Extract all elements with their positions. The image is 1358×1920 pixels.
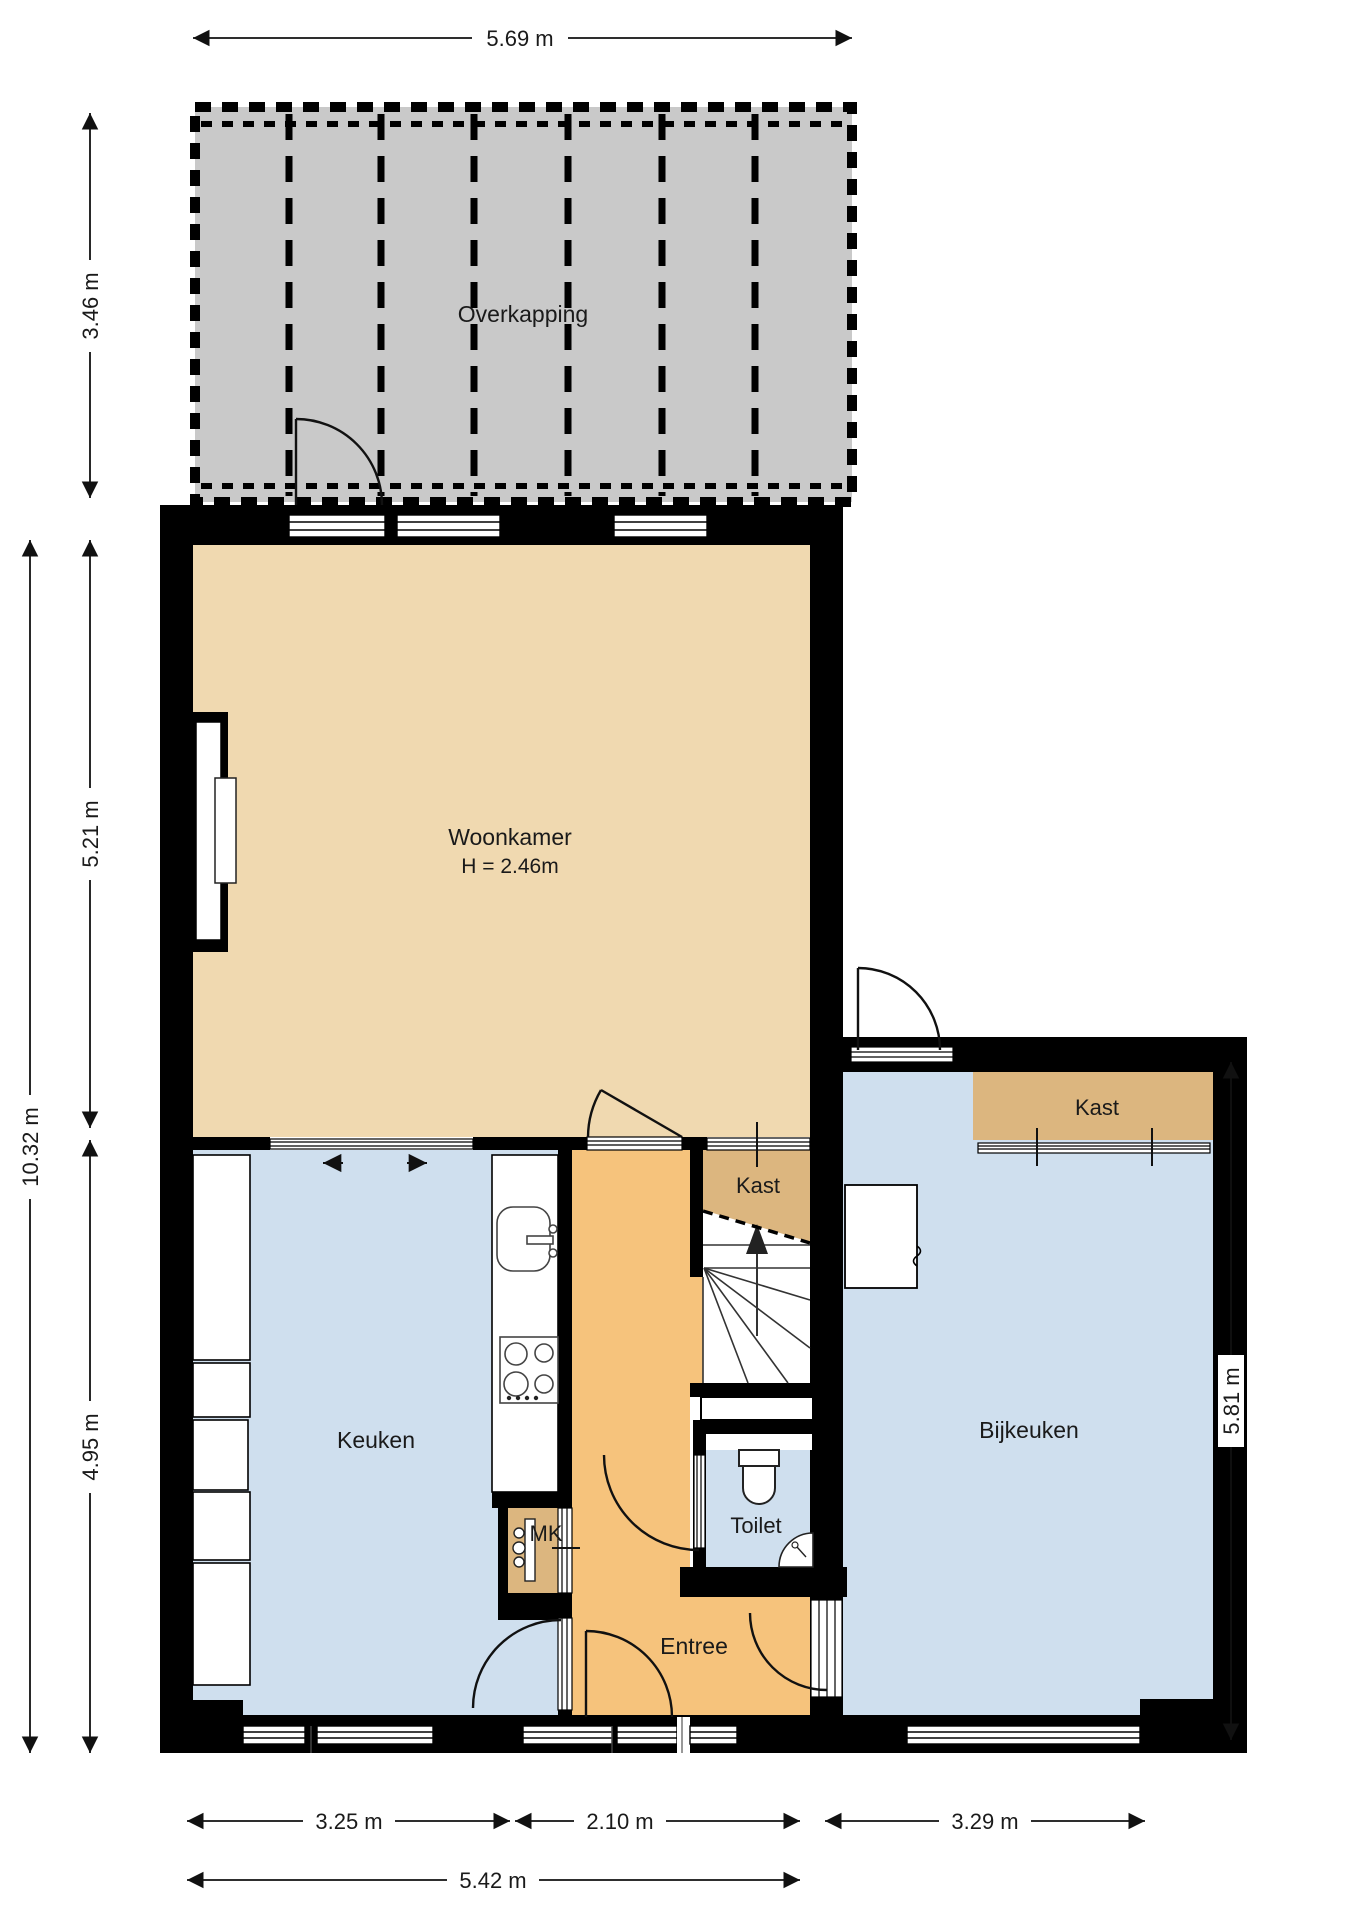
wall-north (160, 505, 843, 545)
dim-keuken-depth: 4.95 m (78, 1413, 103, 1480)
sliding-door-track (270, 1139, 473, 1149)
kast-bijkeuken-door (978, 1143, 1210, 1153)
toilet-fixture-icon (739, 1450, 779, 1504)
label-entree: Entree (660, 1633, 728, 1659)
front-door-threshold (617, 1726, 677, 1744)
woonkamer-door-threshold (587, 1137, 682, 1150)
label-bijkeuken: Bijkeuken (979, 1417, 1079, 1443)
dim-keuken-depth-group: 4.95 m (77, 1401, 103, 1493)
dim-top-width: 5.69 m (486, 26, 553, 51)
wall-mk-south (498, 1593, 558, 1620)
dim-total-depth: 10.32 m (18, 1107, 43, 1187)
toilet-door-threshold (694, 1455, 705, 1548)
label-overkapping: Overkapping (458, 301, 588, 327)
void-recess-1 (701, 1397, 813, 1420)
window-north-2 (397, 515, 500, 537)
label-keuken: Keuken (337, 1427, 415, 1453)
floorplan-canvas: 5.69 m 3.46 m 5.21 m 4.95 m 10.32 m 5.81… (0, 0, 1358, 1920)
window-south-keuken-2 (317, 1726, 433, 1744)
wall-mk-west (498, 1508, 508, 1593)
dim-keuken-width: 3.25 m (315, 1809, 382, 1834)
window-south-bijkeuken (907, 1726, 1140, 1744)
dim-bijkeuken-depth: 5.81 m (1219, 1367, 1244, 1434)
window-north-1 (289, 515, 385, 537)
entree-bijkeuken-door-threshold (811, 1600, 842, 1697)
wall-stairs-south (690, 1383, 813, 1397)
kast-stairs-door (707, 1138, 810, 1150)
label-woonkamer-height: H = 2.46m (461, 855, 558, 878)
label-mk: MK (530, 1521, 563, 1546)
dim-total-width: 5.42 m (459, 1868, 526, 1893)
dim-bijkeuken-width: 3.29 m (951, 1809, 1018, 1834)
wall-west (160, 505, 193, 1753)
kitchen-counter (492, 1155, 558, 1492)
window-south-entree-2 (690, 1726, 737, 1744)
keuken-door-threshold (558, 1618, 572, 1710)
wall-woonkamer-south-2 (473, 1137, 587, 1150)
dim-entree-width: 2.10 m (586, 1809, 653, 1834)
wall-east-main (810, 505, 843, 1753)
entree-floor-sliver (690, 1277, 703, 1383)
wall-toilet-south (680, 1567, 847, 1597)
front-door-gap (677, 1717, 690, 1753)
dim-bijkeuken-depth-group: 5.81 m (1218, 1355, 1244, 1447)
dim-woonkamer-depth-group: 5.21 m (77, 788, 103, 880)
bijkeuken-exterior-door-threshold (851, 1047, 953, 1062)
wall-stairs-west (690, 1137, 703, 1277)
wall-void-band (693, 1420, 813, 1434)
label-kast-stairs: Kast (736, 1173, 780, 1198)
label-kast-bijkeuken: Kast (1075, 1095, 1119, 1120)
wall-south-corner-west (160, 1700, 243, 1753)
kitchen-stove-icon (500, 1337, 558, 1403)
bijkeuken-floor (843, 1072, 1213, 1730)
void-recess-2 (706, 1434, 812, 1450)
wall-counter-end (492, 1492, 558, 1508)
label-woonkamer: Woonkamer (448, 824, 572, 850)
dim-woonkamer-depth: 5.21 m (78, 800, 103, 867)
kitchen-sink-icon (497, 1207, 557, 1271)
wall-woonkamer-south-1 (193, 1137, 270, 1150)
window-north-3 (614, 515, 707, 537)
niche-panel (215, 778, 236, 883)
wall-south-pier (440, 1715, 523, 1753)
floorplan-page: 5.69 m 3.46 m 5.21 m 4.95 m 10.32 m 5.81… (0, 0, 1358, 1920)
window-south-entree-1 (523, 1726, 612, 1744)
label-toilet: Toilet (730, 1513, 781, 1538)
window-south-keuken-1 (243, 1726, 305, 1744)
bijkeuken-appliance-icon (845, 1185, 921, 1288)
keuken-cabinets (193, 1155, 250, 1685)
dim-overkapping-depth-group: 3.46 m (77, 260, 103, 352)
dim-total-depth-group: 10.32 m (17, 1095, 43, 1199)
dim-overkapping-depth: 3.46 m (78, 272, 103, 339)
